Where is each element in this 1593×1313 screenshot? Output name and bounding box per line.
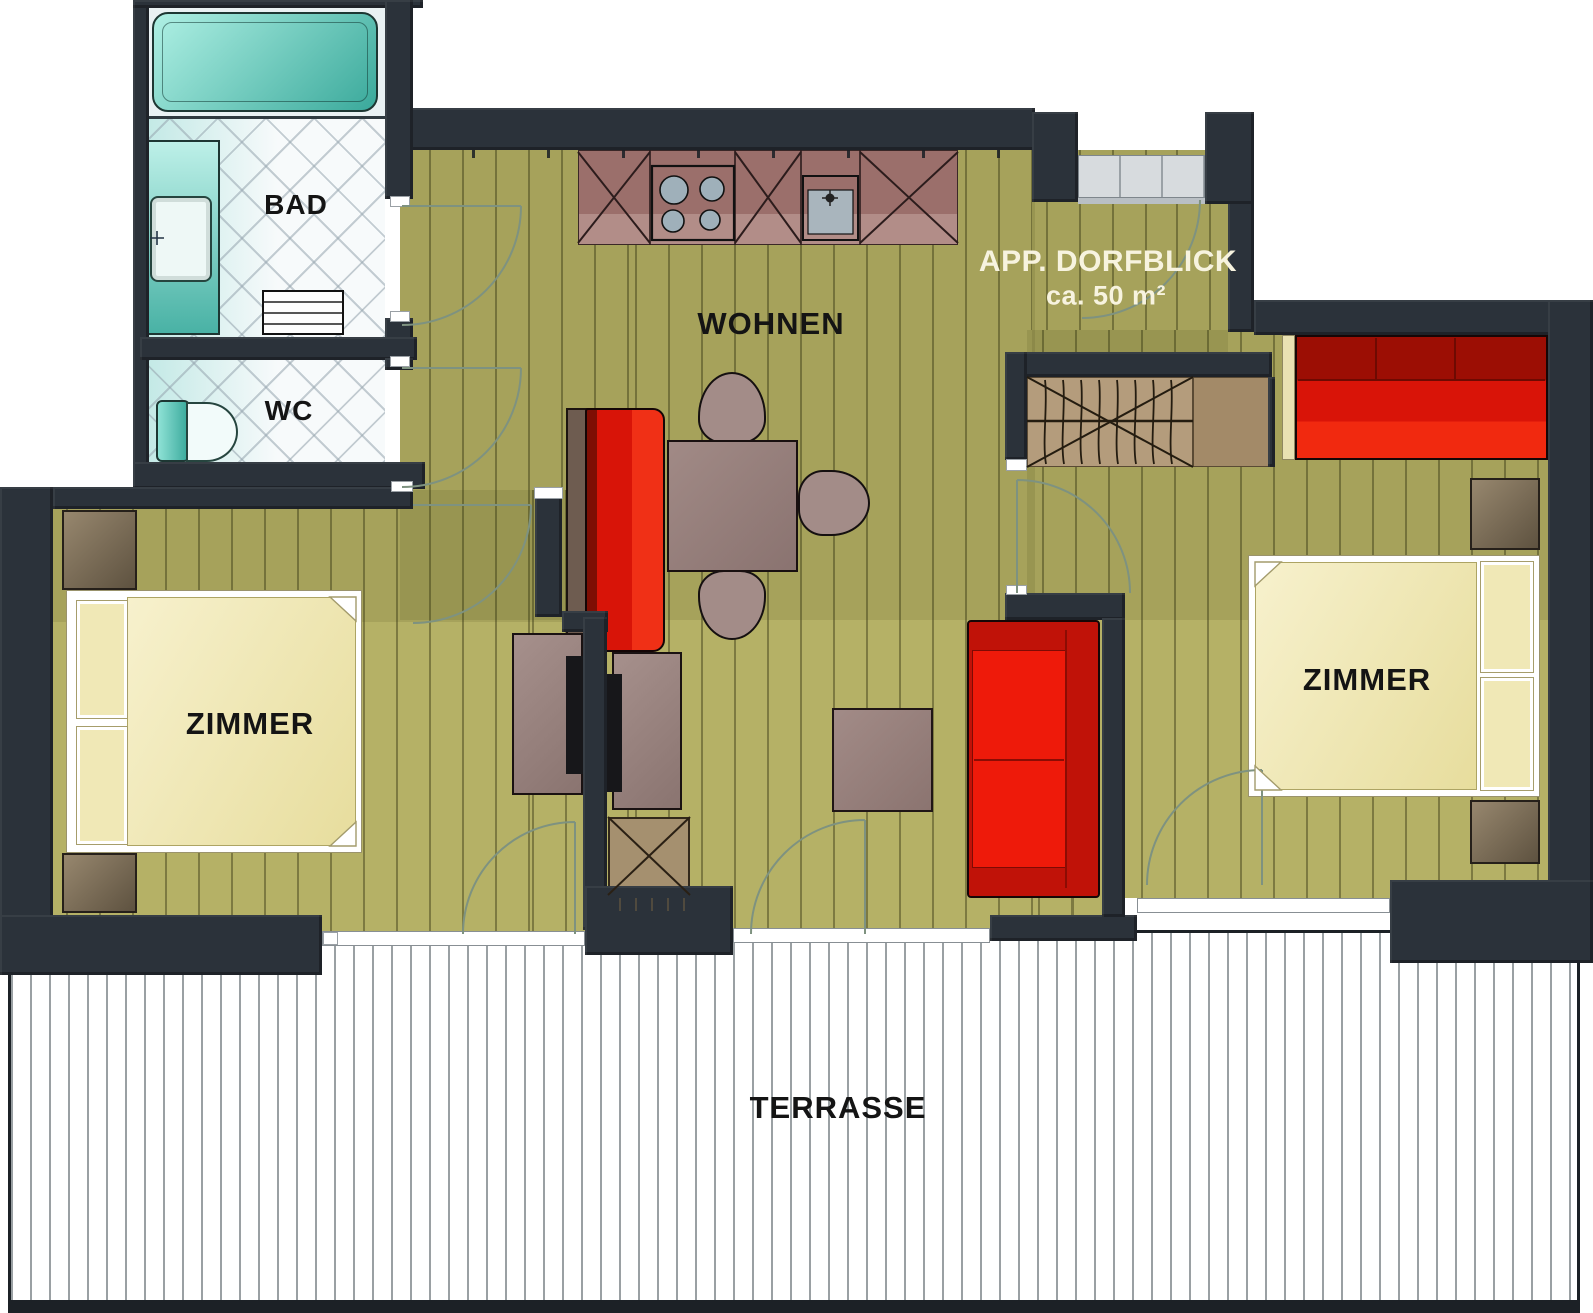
wall bbox=[1032, 112, 1078, 202]
staircase bbox=[1027, 377, 1193, 467]
room-label-wohnen: WOHNEN bbox=[697, 306, 844, 342]
living-sofa-seat bbox=[972, 650, 1066, 868]
entry-door bbox=[1078, 155, 1205, 198]
bathtub bbox=[152, 12, 378, 112]
wall bbox=[133, 0, 149, 490]
wall bbox=[990, 915, 1137, 941]
toilet-tank bbox=[156, 400, 190, 462]
bathtub-inner-rim bbox=[162, 22, 368, 102]
room-label-wc: WC bbox=[265, 395, 314, 427]
wall bbox=[585, 886, 733, 955]
door-jamb-cap bbox=[391, 481, 413, 492]
wall bbox=[140, 337, 417, 360]
door-jamb-cap bbox=[390, 311, 410, 322]
tv-hall bbox=[566, 656, 584, 774]
nightstand bbox=[62, 853, 137, 913]
door-jamb-cap bbox=[323, 932, 338, 945]
terrace-door-glazing bbox=[733, 928, 990, 943]
red-bench-sofa bbox=[1295, 335, 1548, 460]
wall bbox=[385, 0, 413, 199]
wall bbox=[0, 487, 53, 975]
wall bbox=[1205, 112, 1254, 204]
coffee-table bbox=[832, 708, 933, 812]
wall bbox=[1102, 618, 1125, 917]
wall bbox=[1268, 377, 1275, 467]
nightstand bbox=[62, 510, 137, 590]
room-label-zimmer-left: ZIMMER bbox=[186, 706, 314, 742]
wall bbox=[583, 617, 607, 930]
room-label-terrasse: TERRASSE bbox=[750, 1090, 927, 1126]
wall bbox=[53, 487, 413, 509]
room-label-zimmer-right: ZIMMER bbox=[1303, 662, 1431, 698]
kitchen-counter bbox=[578, 150, 958, 245]
bed-pillow bbox=[1481, 678, 1533, 790]
door-jamb-cap bbox=[1006, 585, 1027, 595]
bed-pillow bbox=[77, 601, 127, 718]
terrace-door-glazing bbox=[1137, 898, 1390, 913]
wall bbox=[1548, 300, 1593, 963]
door-jamb-cap bbox=[534, 487, 563, 499]
entry-door-threshold bbox=[1078, 198, 1205, 204]
wall-tick-strip bbox=[400, 150, 1035, 158]
washbasin-sink bbox=[150, 196, 212, 282]
storage-cabinet-x bbox=[608, 817, 690, 895]
bed-pillow bbox=[77, 727, 127, 844]
wall bbox=[1005, 352, 1027, 460]
floor-plan: BAD WC WOHNEN ZIMMER ZIMMER TERRASSE APP… bbox=[0, 0, 1593, 1313]
nightstand bbox=[1470, 478, 1540, 550]
room-label-bad: BAD bbox=[264, 189, 328, 221]
living-sideboard bbox=[612, 652, 682, 810]
wall bbox=[133, 0, 423, 8]
dining-table bbox=[667, 440, 798, 572]
wall bbox=[392, 108, 1035, 150]
apartment-title: APP. DORFBLICK bbox=[979, 245, 1237, 279]
wall bbox=[1390, 880, 1593, 963]
apartment-area: ca. 50 m² bbox=[1046, 281, 1166, 312]
door-jamb-cap bbox=[390, 196, 410, 207]
wall bbox=[133, 462, 425, 489]
wall bbox=[1005, 352, 1272, 377]
bench-end-strip bbox=[1282, 335, 1295, 460]
terrace-window bbox=[322, 931, 585, 946]
bath-shelf-radiator bbox=[262, 290, 344, 335]
wall bbox=[1254, 300, 1593, 335]
door-jamb-cap bbox=[1006, 459, 1027, 471]
wall bbox=[535, 490, 562, 617]
wall bbox=[1005, 593, 1125, 620]
bed-pillow bbox=[1481, 562, 1533, 672]
nightstand bbox=[1470, 800, 1540, 864]
door-jamb-cap bbox=[390, 356, 410, 367]
wall bbox=[0, 915, 322, 975]
stair-landing bbox=[1193, 377, 1272, 467]
